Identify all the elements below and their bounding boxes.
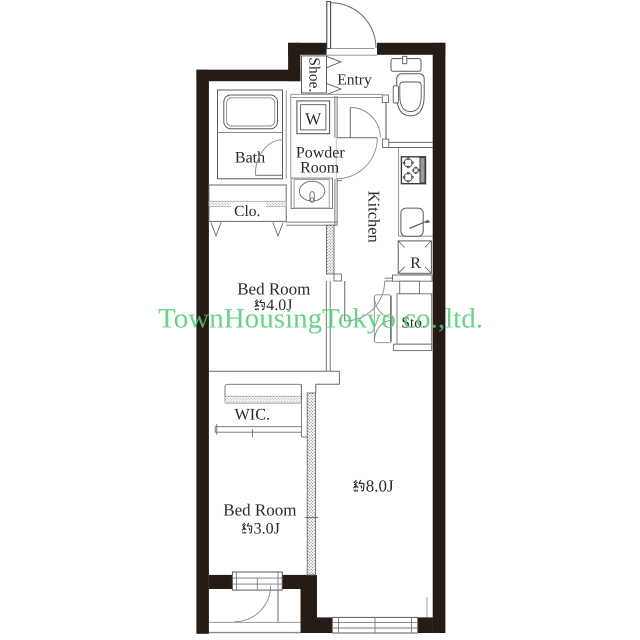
svg-text:Kitchen: Kitchen — [364, 191, 383, 243]
svg-text:Bed Room: Bed Room — [237, 280, 310, 299]
svg-text:3.0J: 3.0J — [254, 521, 280, 538]
svg-text:Bath: Bath — [235, 149, 265, 166]
svg-text:Clo.: Clo. — [234, 203, 260, 220]
svg-text:WIC.: WIC. — [235, 406, 271, 424]
svg-text:8.0J: 8.0J — [366, 477, 394, 496]
svg-text:R: R — [410, 255, 421, 272]
svg-text:W: W — [305, 109, 322, 128]
svg-text:Room: Room — [300, 159, 340, 176]
svg-text:Bed Room: Bed Room — [223, 501, 296, 520]
svg-text:Shoe.: Shoe. — [306, 57, 323, 92]
svg-text:TownHousingTokyo co.,ltd.: TownHousingTokyo co.,ltd. — [158, 304, 483, 335]
svg-text:Entry: Entry — [337, 71, 372, 88]
